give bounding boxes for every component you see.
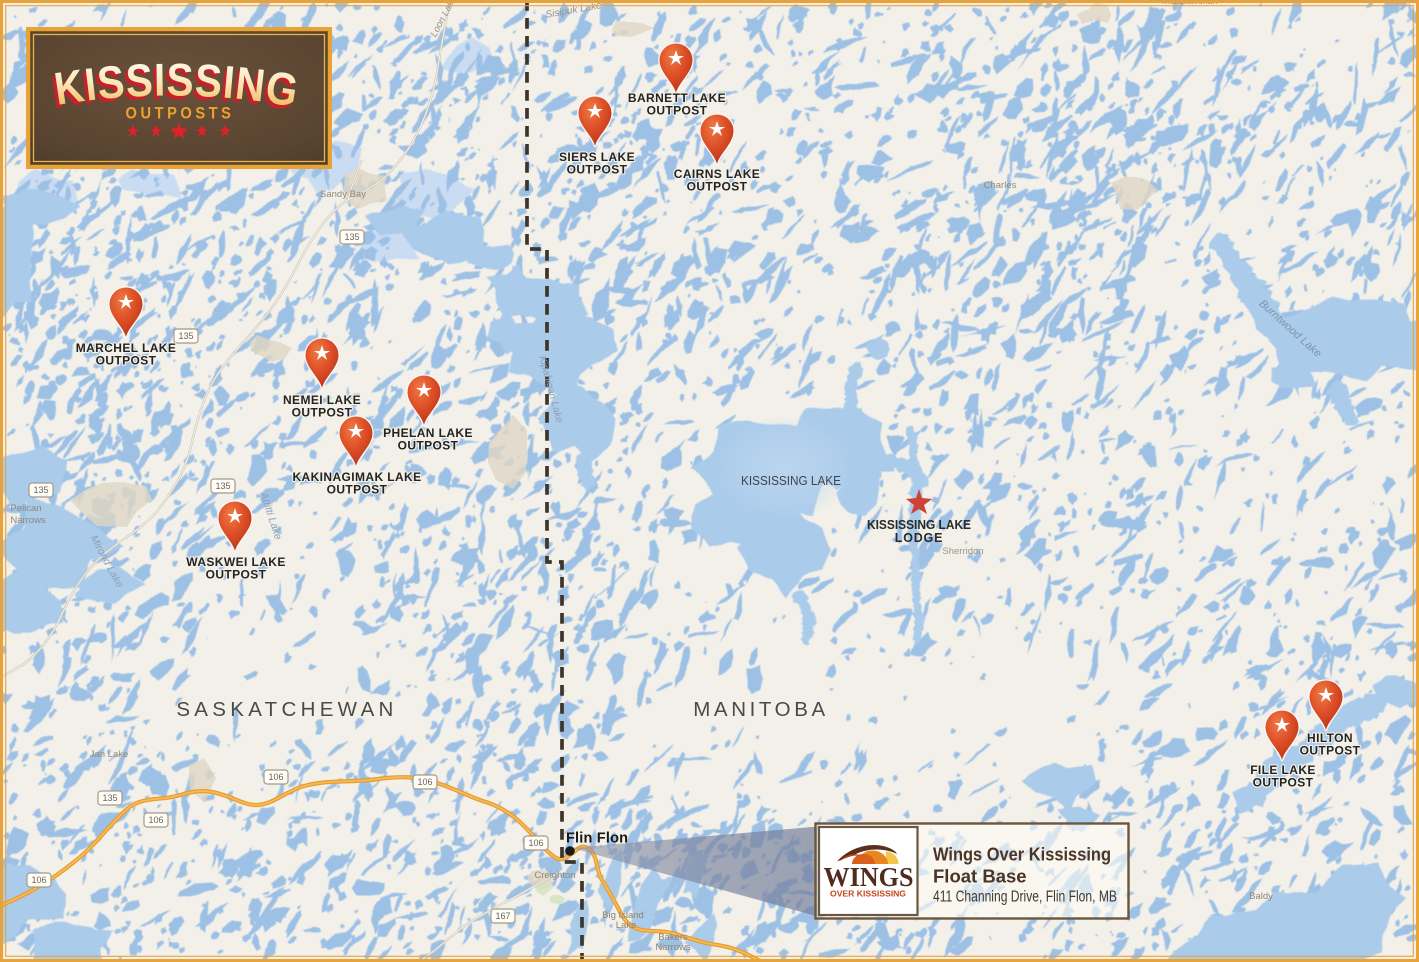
svg-text:411 Channing Drive, Flin Flon,: 411 Channing Drive, Flin Flon, MB [933,889,1117,906]
svg-text:LODGE: LODGE [895,531,943,545]
svg-text:MANITOBA: MANITOBA [693,698,829,721]
svg-text:Wings Over Kississing: Wings Over Kississing [933,844,1111,865]
svg-text:Creighton: Creighton [534,870,575,881]
svg-text:Float Base: Float Base [933,866,1027,887]
svg-text:KISSISSING LAKE: KISSISSING LAKE [867,518,971,532]
svg-text:106: 106 [268,772,283,782]
svg-text:Charles: Charles [984,180,1017,191]
svg-text:KISSISSING LAKE: KISSISSING LAKE [741,473,841,488]
svg-text:OUTPOSTS: OUTPOSTS [126,105,235,123]
svg-text:106: 106 [31,875,46,885]
svg-text:OVER KISSISSING: OVER KISSISSING [830,889,906,899]
svg-text:Sandy Bay: Sandy Bay [320,189,366,200]
svg-text:SIERS LAKEOUTPOST: SIERS LAKEOUTPOST [559,150,635,177]
svg-text:Sherridon: Sherridon [942,546,983,557]
svg-text:106: 106 [417,777,432,787]
svg-text:SASKATCHEWAN: SASKATCHEWAN [176,698,397,721]
svg-text:Jan Lake: Jan Lake [90,749,129,760]
svg-text:135: 135 [178,331,193,341]
svg-text:167: 167 [495,911,510,921]
svg-text:Narrows: Narrows [10,515,46,526]
svg-text:Baldy: Baldy [1249,891,1273,902]
svg-text:135: 135 [344,232,359,242]
svg-text:106: 106 [528,838,543,848]
svg-text:CAIRNS LAKEOUTPOST: CAIRNS LAKEOUTPOST [674,167,760,194]
svg-text:HILTONOUTPOST: HILTONOUTPOST [1300,731,1361,758]
svg-text:Narrows: Narrows [655,942,691,953]
svg-text:Flin Flon: Flin Flon [566,831,628,847]
svg-text:135: 135 [215,481,230,491]
svg-text:Pelican: Pelican [10,503,41,514]
svg-text:Lake: Lake [616,920,637,931]
svg-text:FILE LAKEOUTPOST: FILE LAKEOUTPOST [1250,763,1316,790]
svg-text:106: 106 [148,815,163,825]
svg-text:NEMEI LAKEOUTPOST: NEMEI LAKEOUTPOST [283,393,361,420]
svg-text:WINGS: WINGS [824,862,914,892]
svg-text:135: 135 [33,485,48,495]
svg-text:135: 135 [102,793,117,803]
